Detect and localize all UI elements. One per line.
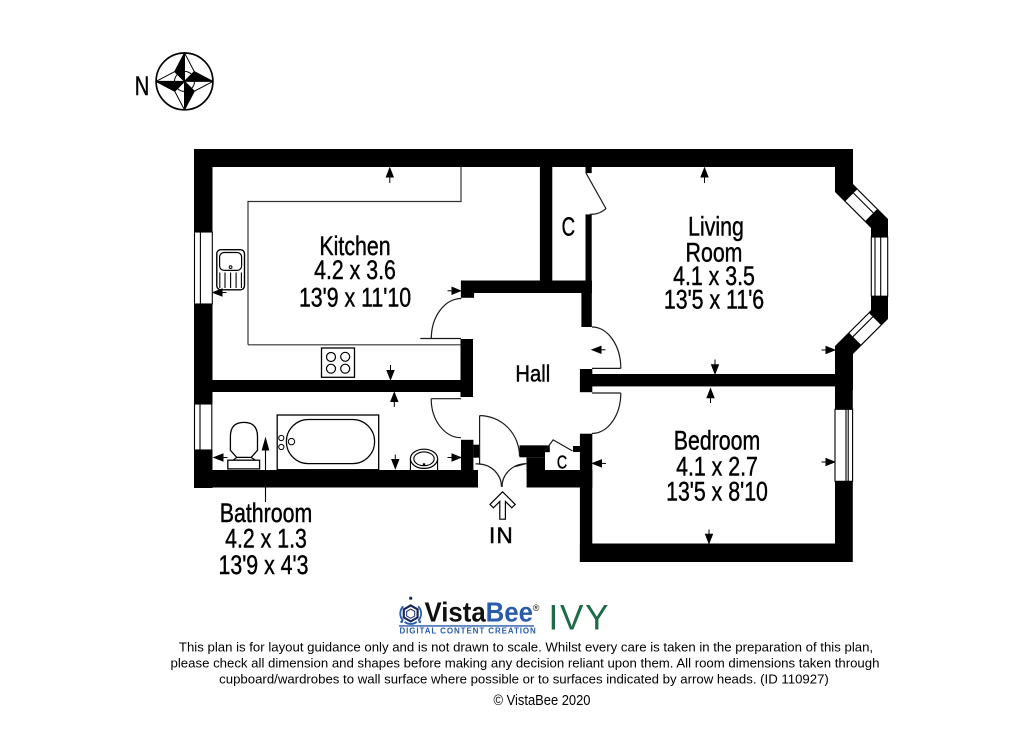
svg-text:C: C xyxy=(562,213,575,242)
svg-text:cupboard/wardrobes to wall sur: cupboard/wardrobes to wall surface where… xyxy=(219,672,829,687)
svg-text:This plan is for layout guidan: This plan is for layout guidance only an… xyxy=(179,640,873,655)
svg-text:IVY: IVY xyxy=(549,599,611,638)
svg-text:please check all dimension and: please check all dimension and shapes be… xyxy=(171,656,880,671)
svg-text:®: ® xyxy=(533,603,540,613)
svg-text:N: N xyxy=(135,71,150,101)
svg-text:13'9 x 11'10: 13'9 x 11'10 xyxy=(299,283,411,313)
svg-text:VistaBee: VistaBee xyxy=(425,597,534,628)
svg-text:Hall: Hall xyxy=(515,360,550,387)
svg-text:13'9 x 4'3: 13'9 x 4'3 xyxy=(219,551,309,581)
svg-text:13'5 x 11'6: 13'5 x 11'6 xyxy=(664,285,764,315)
svg-text:4.2 x 3.6: 4.2 x 3.6 xyxy=(314,256,396,286)
svg-text:DIGITAL CONTENT CREATION: DIGITAL CONTENT CREATION xyxy=(400,627,537,636)
svg-text:© VistaBee 2020: © VistaBee 2020 xyxy=(494,693,591,709)
svg-text:IN: IN xyxy=(489,523,514,548)
svg-text:C: C xyxy=(557,453,568,473)
svg-text:13'5 x 8'10: 13'5 x 8'10 xyxy=(666,477,768,507)
